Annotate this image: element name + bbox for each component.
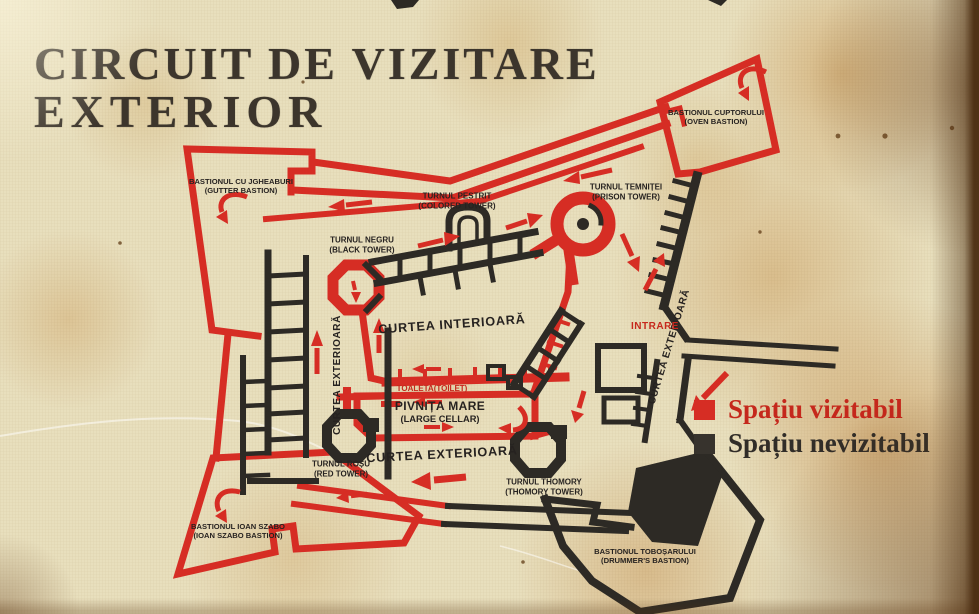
- label-colored-tower: TURNUL PESTRIT(COLORED TOWER): [418, 191, 495, 211]
- legend-label-not-visitable: Spațiu nevizitabil: [728, 430, 930, 457]
- title-line-2: EXTERIOR: [34, 88, 600, 136]
- legend-item-not-visitable: Spațiu nevizitabil: [694, 430, 930, 457]
- label-black-tower: TURNUL NEGRU(BLACK TOWER): [329, 235, 394, 255]
- west-wall: [216, 334, 228, 458]
- legend-item-visitable: Spațiu vizitabil: [694, 396, 930, 423]
- label-thomory-tower: TURNUL THOMORY(THOMORY TOWER): [505, 477, 583, 497]
- title-line-1: CIRCUIT DE VIZITARE: [34, 40, 600, 88]
- label-oven-bastion: BASTIONUL CUPTORULUI(OVEN BASTION): [668, 108, 764, 127]
- label-outer-courtyard-west: CURTEA EXTERIOARĂ: [332, 315, 344, 435]
- label-prison-tower: TURNUL TEMNIȚEI(PRISON TOWER): [590, 182, 662, 202]
- legend-label-visitable: Spațiu vizitabil: [728, 396, 903, 423]
- south-wall-red-a: [300, 486, 448, 506]
- legend: Spațiu vizitabil Spațiu nevizitabil: [694, 396, 930, 464]
- legend-swatch-visitable: [694, 400, 715, 420]
- label-drummer-bastion: BASTIONUL TOBOȘARULUI(DRUMMER'S BASTION): [594, 547, 696, 566]
- label-entrance: INTRARE: [631, 321, 679, 333]
- page-title: CIRCUIT DE VIZITARE EXTERIOR: [34, 40, 600, 136]
- label-red-tower: TURNUL ROȘU(RED TOWER): [312, 459, 370, 479]
- label-szabo-bastion: BASTIONUL IOAN SZABO(IOAN SZABO BASTION): [191, 522, 285, 541]
- label-gutter-bastion: BASTIONUL CU JGHEABURI(GUTTER BASTION): [189, 177, 293, 196]
- label-toilet: TOALETA(TOILET): [397, 384, 468, 394]
- label-large-cellar: PIVNIȚA MARE(LARGE CELLAR): [395, 399, 485, 425]
- legend-swatch-not-visitable: [694, 434, 715, 454]
- entrance-bridge: [688, 340, 836, 349]
- fortress-visiting-map: CIRCUIT DE VIZITARE EXTERIOR BASTIONUL C…: [0, 0, 979, 614]
